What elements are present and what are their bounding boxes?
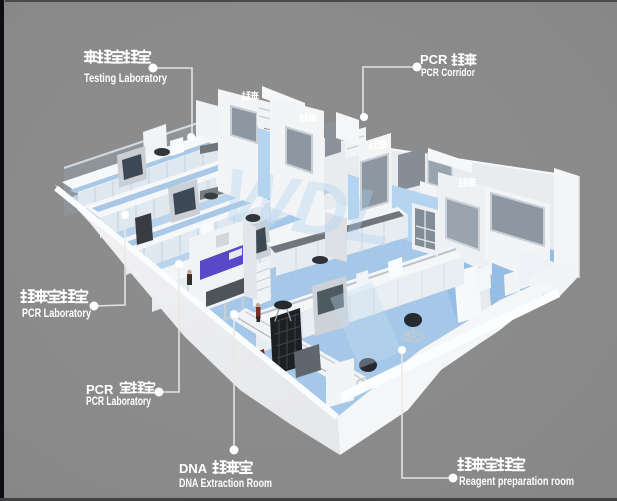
svg-text:PCR Laboratory: PCR Laboratory bbox=[86, 396, 151, 408]
svg-text:Testing Laboratory: Testing Laboratory bbox=[84, 71, 167, 85]
svg-text:Reagent preparation room: Reagent preparation room bbox=[459, 474, 574, 488]
svg-text:PCR: PCR bbox=[86, 382, 114, 397]
svg-text:DNA: DNA bbox=[179, 461, 208, 476]
svg-text:PCR Laboratory: PCR Laboratory bbox=[22, 306, 91, 320]
svg-text:PCR Corridor: PCR Corridor bbox=[421, 67, 476, 79]
svg-text:PCR: PCR bbox=[420, 52, 448, 67]
svg-text:DNA Extraction Room: DNA Extraction Room bbox=[179, 476, 272, 490]
